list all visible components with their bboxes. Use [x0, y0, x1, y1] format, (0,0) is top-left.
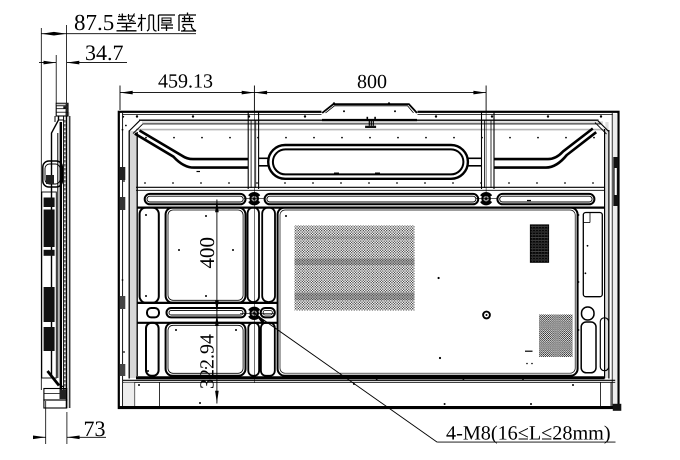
- svg-text:34.7: 34.7: [85, 40, 124, 65]
- svg-text:4-M8(16≤L≤28mm): 4-M8(16≤L≤28mm): [446, 422, 611, 444]
- svg-text:400: 400: [195, 237, 219, 269]
- svg-text:800: 800: [357, 71, 387, 93]
- svg-text:87.5: 87.5: [74, 10, 114, 35]
- svg-text:322.94: 322.94: [197, 334, 219, 389]
- svg-text:459.13: 459.13: [158, 71, 213, 93]
- svg-text:73: 73: [84, 416, 106, 441]
